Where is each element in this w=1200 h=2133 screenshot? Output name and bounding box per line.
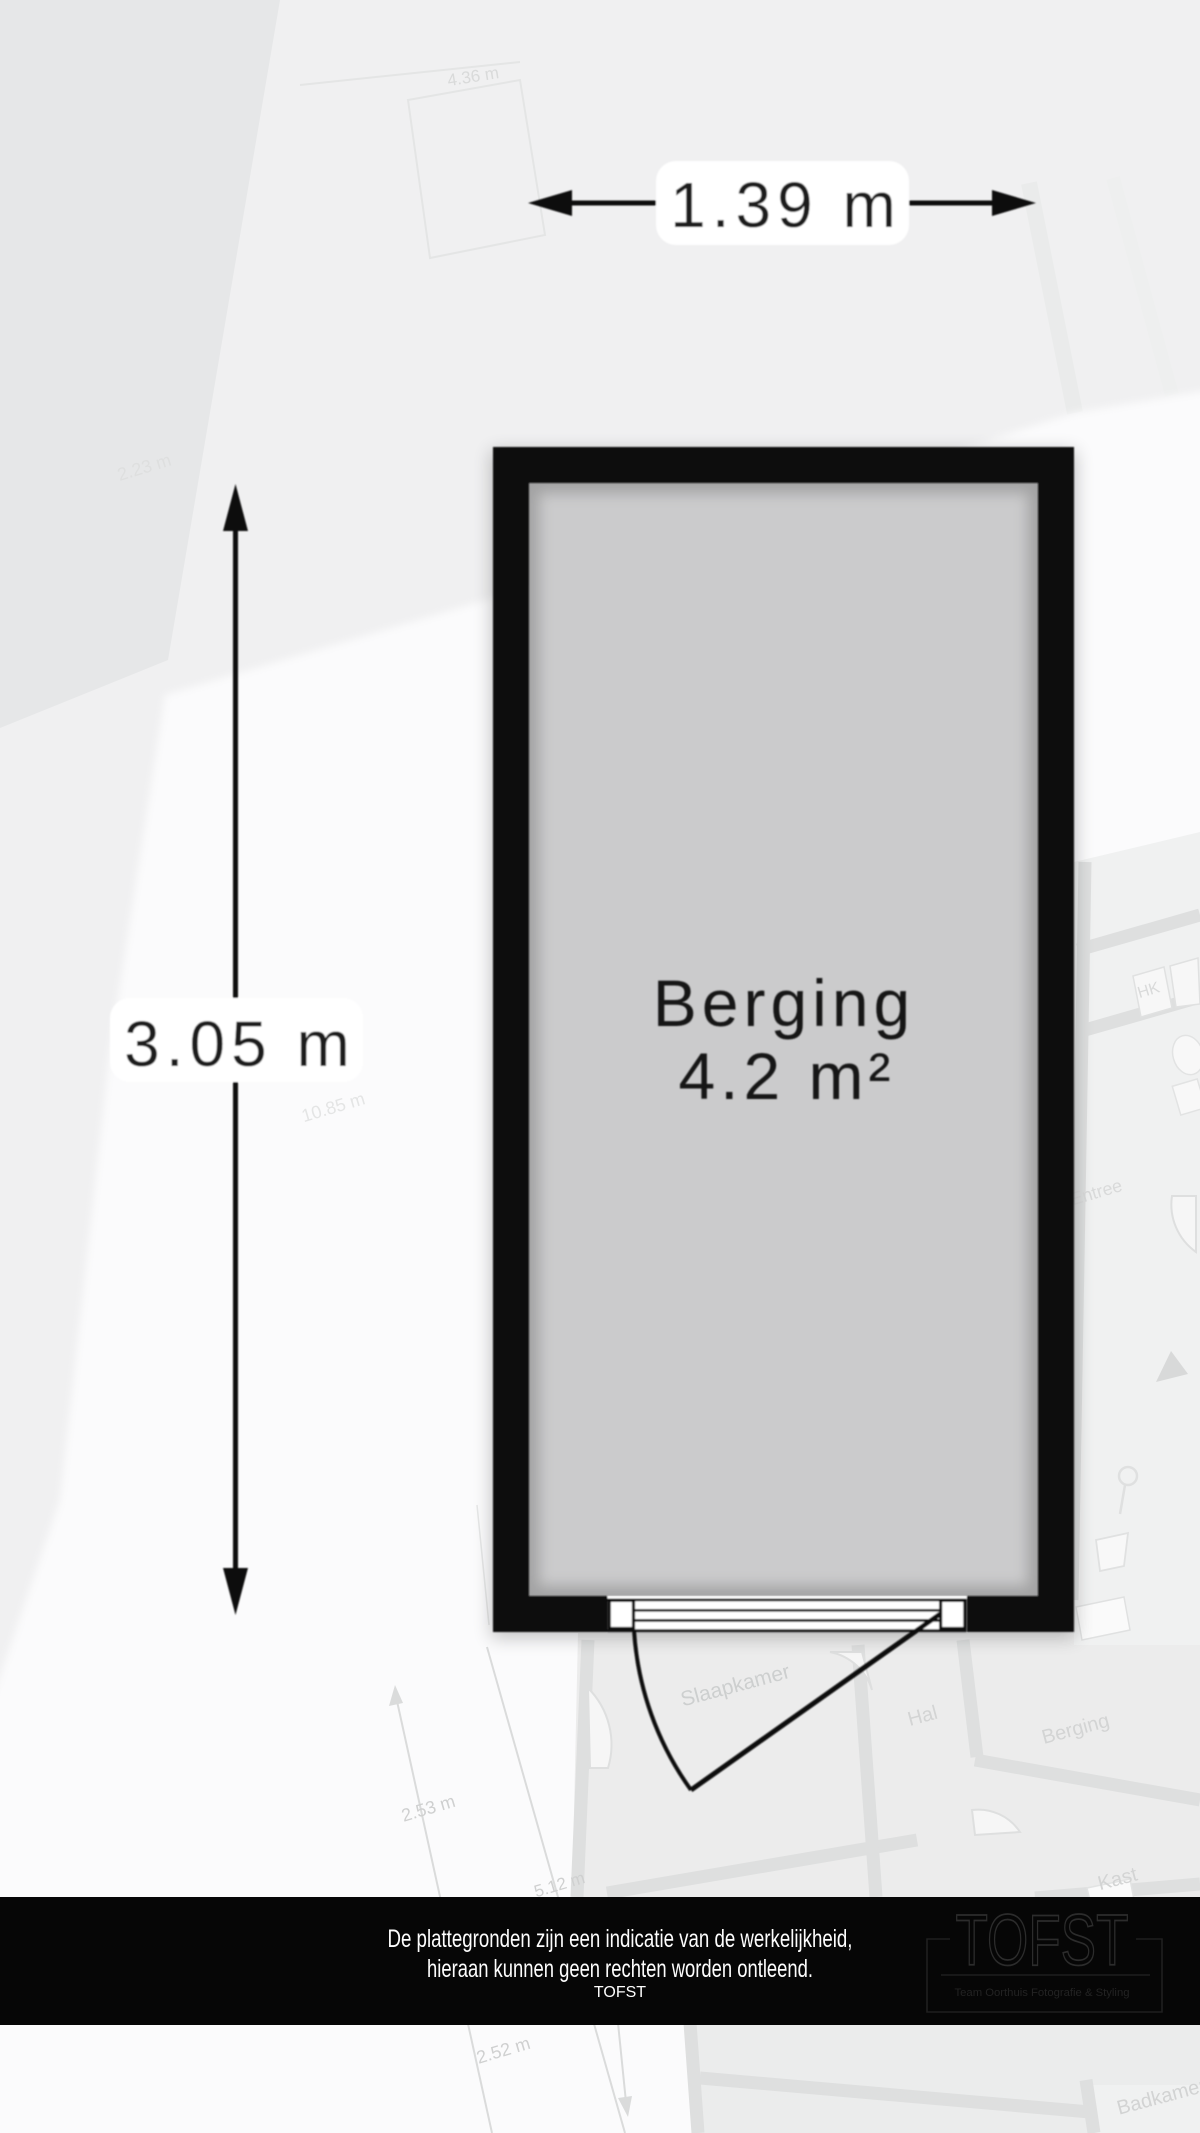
- svg-text:Berging: Berging: [653, 966, 916, 1040]
- svg-text:1.39 m: 1.39 m: [670, 169, 902, 241]
- svg-text:TOFST: TOFST: [594, 1984, 646, 2001]
- svg-text:hieraan kunnen geen rechten wo: hieraan kunnen geen rechten worden ontle…: [427, 1955, 813, 1983]
- svg-text:De plattegronden zijn een indi: De plattegronden zijn een indicatie van …: [388, 1925, 853, 1953]
- svg-text:Team Oorthuis Fotografie & Sty: Team Oorthuis Fotografie & Styling: [955, 1987, 1130, 1999]
- svg-text:3.05 m: 3.05 m: [124, 1008, 356, 1080]
- svg-text:4.2 m²: 4.2 m²: [678, 1039, 895, 1113]
- svg-text:TOFST: TOFST: [956, 1901, 1129, 1981]
